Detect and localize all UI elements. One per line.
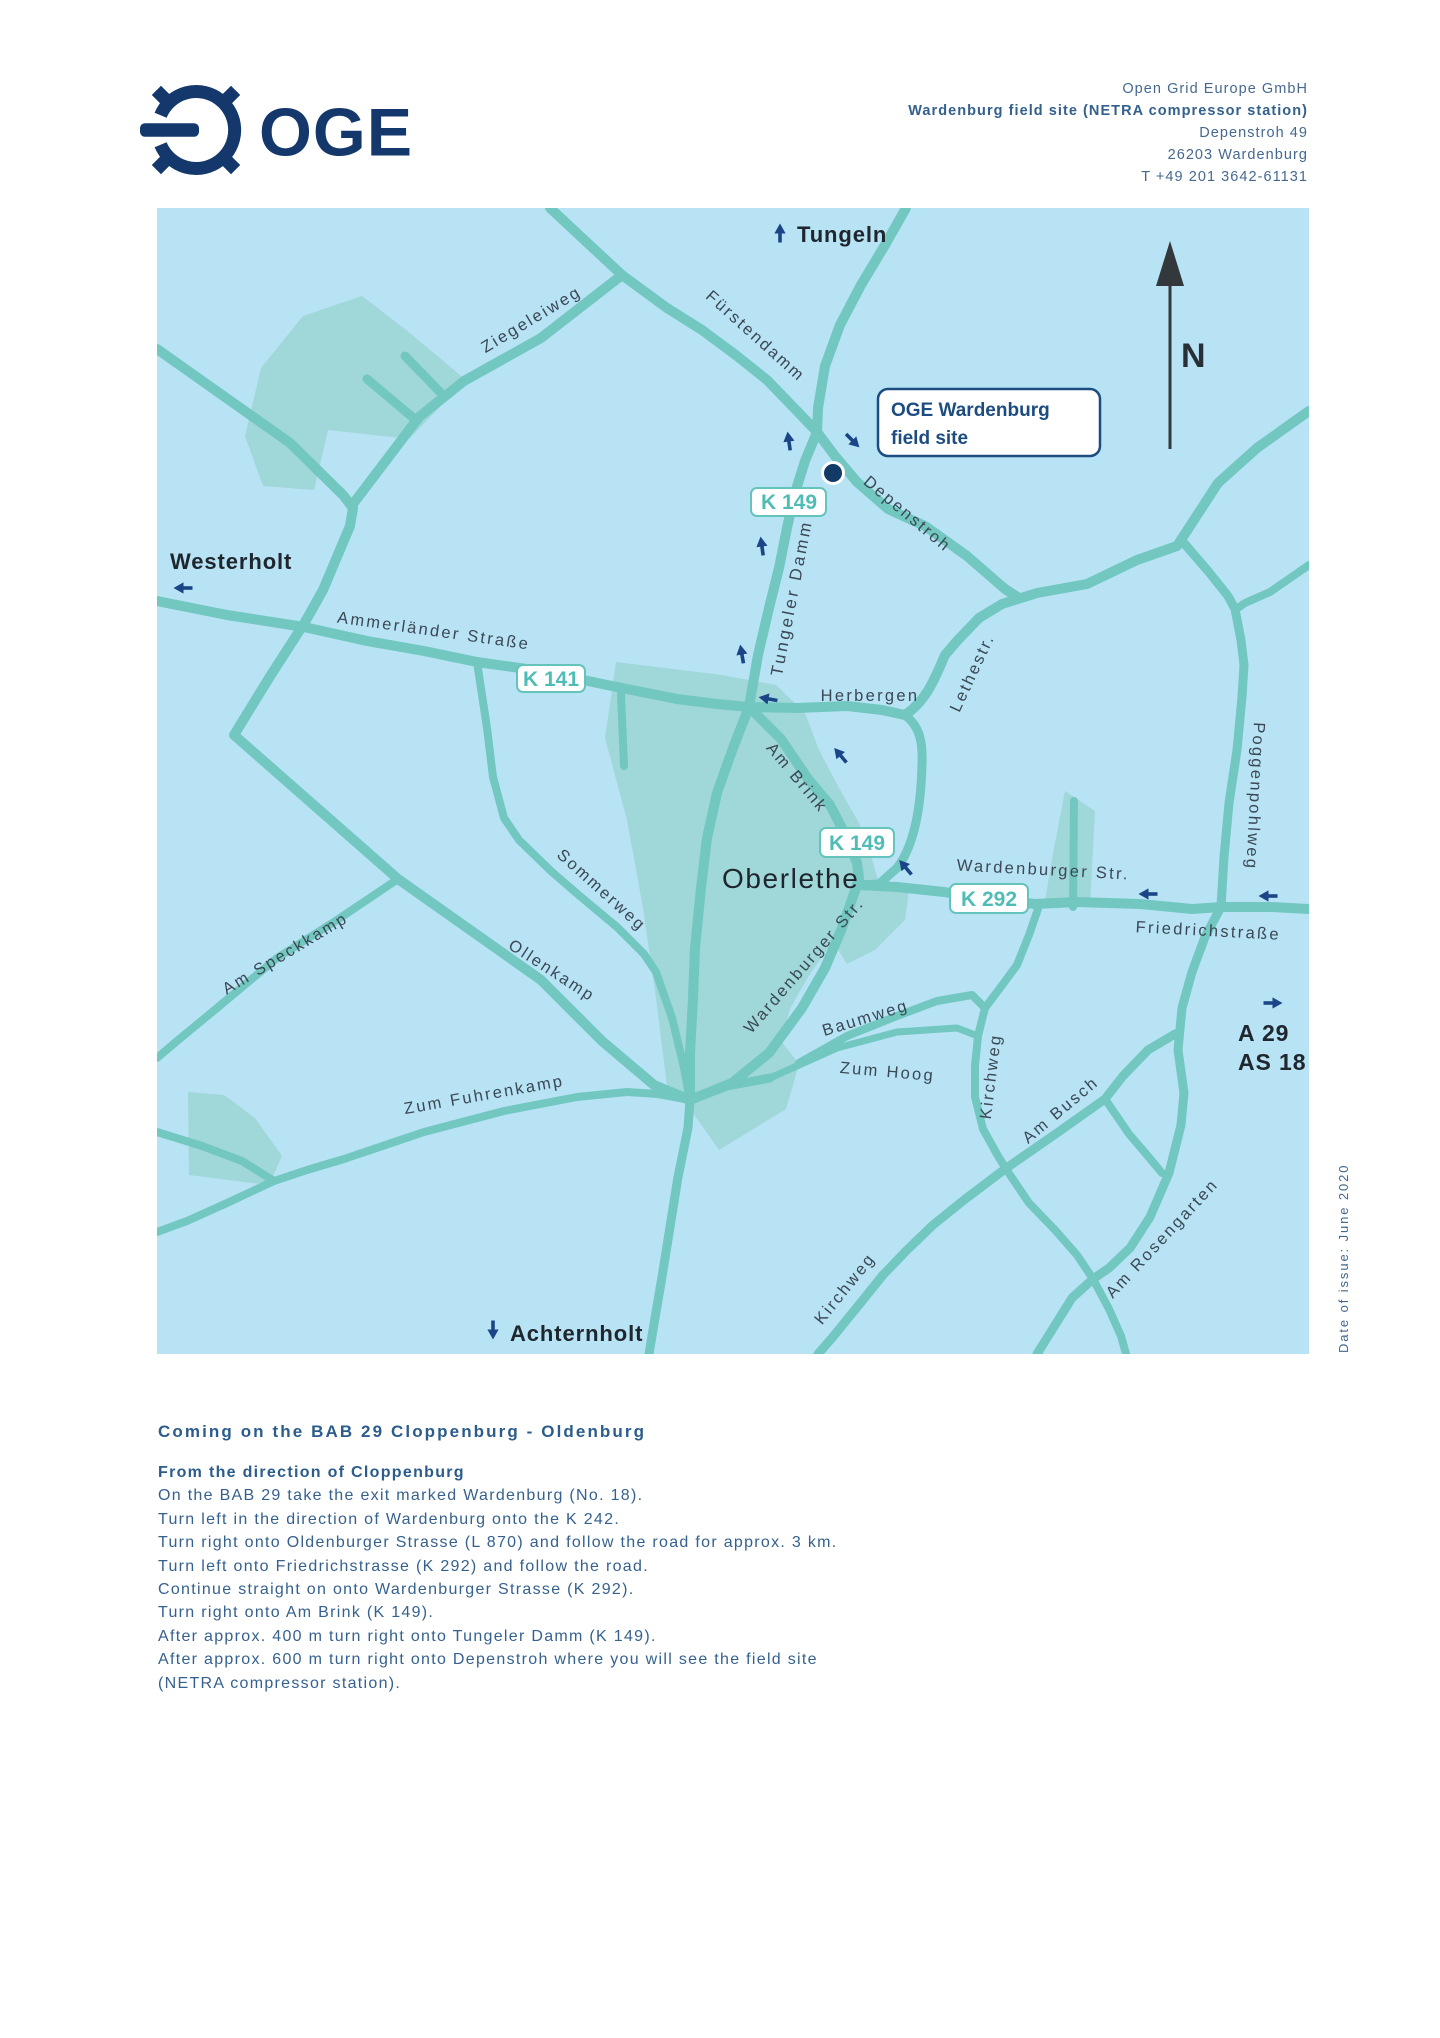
svg-text:Oberlethe: Oberlethe [722, 863, 859, 894]
svg-text:Achternholt: Achternholt [510, 1321, 643, 1346]
svg-text:Tungeln: Tungeln [797, 222, 887, 247]
svg-text:A 29: A 29 [1238, 1020, 1289, 1046]
svg-text:K 141: K 141 [523, 668, 579, 691]
svg-text:Herbergen: Herbergen [821, 687, 920, 705]
svg-text:field site: field site [891, 428, 968, 449]
svg-text:AS 18: AS 18 [1238, 1049, 1306, 1075]
svg-text:K 149: K 149 [761, 491, 817, 514]
svg-text:K 292: K 292 [961, 888, 1017, 911]
svg-text:N: N [1181, 337, 1206, 375]
svg-text:K 149: K 149 [829, 832, 885, 855]
svg-text:OGE Wardenburg: OGE Wardenburg [891, 400, 1050, 421]
svg-text:Westerholt: Westerholt [170, 549, 292, 574]
svg-text:OGE: OGE [259, 95, 413, 171]
